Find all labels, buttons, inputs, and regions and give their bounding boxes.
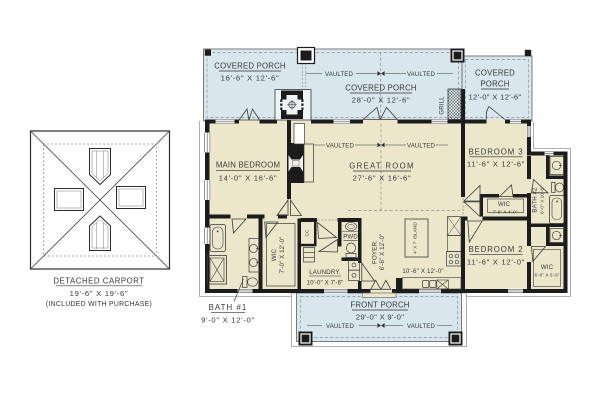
svg-text:VAULTED: VAULTED — [325, 71, 354, 78]
svg-text:PORCH: PORCH — [480, 80, 509, 89]
svg-text:14'-0" X 16'-6": 14'-0" X 16'-6" — [219, 174, 278, 183]
svg-text:6'-0" X 6'-6": 6'-0" X 6'-6" — [534, 273, 559, 278]
svg-text:BEDROOM 3: BEDROOM 3 — [469, 148, 524, 157]
svg-text:CC: CC — [305, 229, 310, 236]
svg-text:BATH #1: BATH #1 — [209, 303, 248, 312]
svg-text:9'-0" X 12'-0": 9'-0" X 12'-0" — [201, 316, 255, 325]
svg-text:PWD: PWD — [343, 234, 358, 241]
svg-text:BEDROOM 2: BEDROOM 2 — [469, 245, 524, 254]
svg-text:VAULTED: VAULTED — [407, 143, 436, 150]
svg-text:WIC: WIC — [271, 248, 278, 261]
svg-text:WIC: WIC — [541, 264, 554, 271]
svg-text:11'-6" X 12'-6": 11'-6" X 12'-6" — [467, 160, 525, 169]
svg-text:VAULTED: VAULTED — [407, 323, 436, 330]
svg-text:VAULTED: VAULTED — [326, 143, 355, 150]
svg-text:11'-6" X 12'-0": 11'-6" X 12'-0" — [467, 258, 525, 267]
svg-text:GRILL: GRILL — [439, 96, 446, 115]
svg-text:(INCLUDED WITH PURCHASE): (INCLUDED WITH PURCHASE) — [46, 301, 152, 308]
svg-text:LAUNDRY.: LAUNDRY. — [309, 269, 341, 276]
svg-text:GREAT ROOM: GREAT ROOM — [349, 162, 415, 171]
svg-text:MAIN BEDROOM: MAIN BEDROOM — [216, 161, 280, 170]
svg-text:10'-6" X 12'-0": 10'-6" X 12'-0" — [402, 268, 443, 275]
svg-text:6'-6" X 12'-0": 6'-6" X 12'-0" — [379, 234, 386, 271]
svg-text:28'-0" X 12'-6": 28'-0" X 12'-6" — [352, 96, 411, 105]
svg-text:COVERED: COVERED — [475, 69, 515, 78]
svg-text:FOYER.: FOYER. — [372, 240, 379, 264]
svg-text:DETACHED CARPORT: DETACHED CARPORT — [53, 277, 144, 286]
svg-text:27'-6" X 16'-6": 27'-6" X 16'-6" — [353, 174, 412, 183]
svg-text:6'-0" X 10'-6": 6'-0" X 10'-6" — [540, 186, 545, 214]
svg-text:12'-0" X 12'-6": 12'-0" X 12'-6" — [468, 93, 521, 102]
svg-text:FRONT PORCH: FRONT PORCH — [350, 301, 409, 310]
svg-text:BATH #2: BATH #2 — [532, 187, 539, 213]
svg-text:COVERED PORCH: COVERED PORCH — [345, 84, 416, 93]
svg-text:19'-6" X 19'-6": 19'-6" X 19'-6" — [70, 289, 129, 298]
svg-text:7'-0" X 12'-0": 7'-0" X 12'-0" — [279, 237, 286, 274]
svg-text:29'-0" X 9'-0": 29'-0" X 9'-0" — [356, 313, 405, 322]
svg-text:10'-0" X 7'-6": 10'-0" X 7'-6" — [307, 280, 344, 287]
svg-text:VAULTED: VAULTED — [326, 323, 355, 330]
svg-text:16'-6" X 12'-6": 16'-6" X 12'-6" — [221, 74, 280, 83]
svg-text:WIC: WIC — [498, 201, 511, 208]
svg-text:7'-6" X 4'-0": 7'-6" X 4'-0" — [492, 210, 517, 215]
svg-text:4' X 7' ISLAND: 4' X 7' ISLAND — [413, 222, 418, 254]
svg-text:VAULTED: VAULTED — [407, 71, 436, 78]
svg-text:COVERED PORCH: COVERED PORCH — [214, 62, 285, 71]
